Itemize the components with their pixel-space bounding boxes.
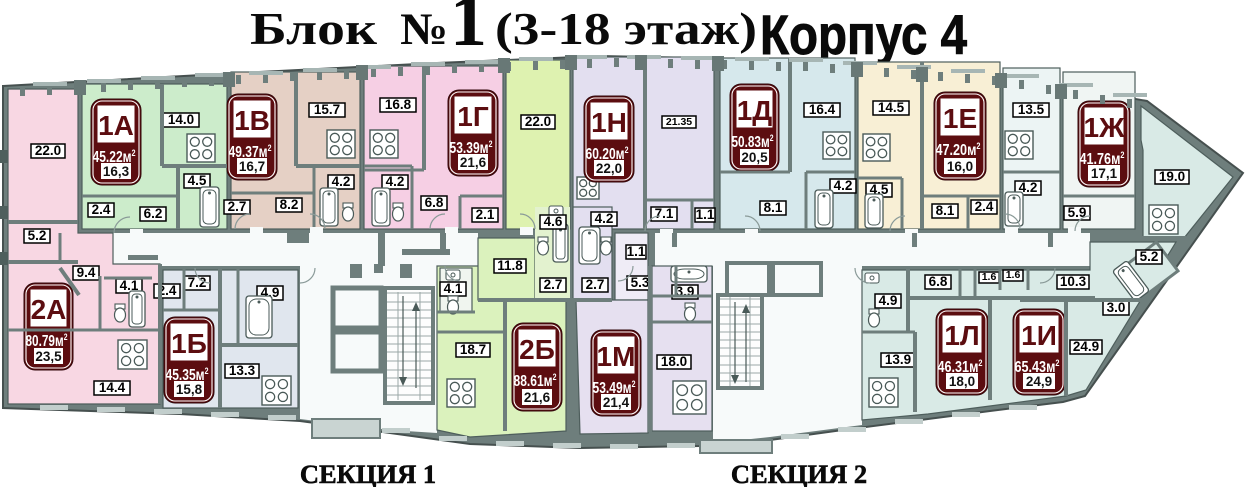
svg-text:1.1: 1.1 [627,244,646,259]
svg-text:1Л: 1Л [944,320,979,351]
svg-text:6.2: 6.2 [144,206,163,221]
svg-text:13.5: 13.5 [1018,102,1045,117]
svg-text:4.2: 4.2 [834,178,853,193]
svg-text:4.6: 4.6 [544,214,563,229]
svg-text:4.2: 4.2 [595,211,614,226]
svg-text:1.6: 1.6 [1006,269,1021,281]
svg-text:18.0: 18.0 [661,354,687,369]
svg-text:24.9: 24.9 [1073,339,1099,354]
svg-text:14.4: 14.4 [99,380,126,395]
svg-text:2.7: 2.7 [544,277,563,292]
svg-text:19.0: 19.0 [1159,169,1185,184]
svg-text:1М: 1М [597,341,636,372]
svg-text:8.2: 8.2 [280,197,299,212]
svg-text:5.2: 5.2 [28,228,47,243]
svg-text:15,8: 15,8 [176,382,203,397]
svg-text:80.79м2: 80.79м2 [26,332,68,350]
svg-text:2.1: 2.1 [476,207,495,222]
svg-text:1.1: 1.1 [696,207,715,222]
svg-text:1И: 1И [1021,320,1057,351]
svg-text:СЕКЦИЯ 1: СЕКЦИЯ 1 [300,459,436,487]
svg-text:8.1: 8.1 [764,200,783,215]
svg-text:1Б: 1Б [171,328,207,359]
svg-text:4.1: 4.1 [444,281,463,296]
svg-text:47.20м2: 47.20м2 [936,141,981,159]
svg-text:(3-18 этаж): (3-18 этаж) [495,4,757,54]
svg-text:№: № [400,4,448,54]
svg-text:14.0: 14.0 [168,112,194,127]
svg-text:1А: 1А [98,110,134,141]
svg-text:6.8: 6.8 [425,195,444,210]
svg-text:2.4: 2.4 [975,199,994,214]
svg-text:2А: 2А [31,294,67,325]
svg-text:13.3: 13.3 [229,363,256,378]
svg-text:6.8: 6.8 [929,274,948,289]
svg-text:10.3: 10.3 [1060,274,1087,289]
svg-text:5.2: 5.2 [1140,249,1159,264]
svg-text:24,9: 24,9 [1026,374,1052,389]
svg-text:1.6: 1.6 [982,271,997,283]
svg-text:15.7: 15.7 [314,102,340,117]
svg-text:3.0: 3.0 [1107,300,1126,315]
svg-text:7.1: 7.1 [655,206,674,221]
svg-text:7.2: 7.2 [188,275,207,290]
svg-text:2.7: 2.7 [586,277,605,292]
svg-text:1Ж: 1Ж [1084,112,1126,143]
svg-text:5.3: 5.3 [631,275,650,290]
svg-text:18.7: 18.7 [460,342,486,357]
svg-text:16,7: 16,7 [239,159,265,174]
svg-text:21,4: 21,4 [603,395,630,410]
svg-text:16,0: 16,0 [947,159,973,174]
svg-text:4.2: 4.2 [332,174,351,189]
svg-text:1Е: 1Е [943,103,977,134]
svg-text:22,0: 22,0 [596,161,622,176]
svg-text:18,0: 18,0 [949,374,975,389]
svg-text:Блок: Блок [250,4,377,54]
svg-text:23,5: 23,5 [35,349,62,364]
svg-text:2Б: 2Б [519,334,555,365]
svg-text:22.0: 22.0 [35,143,61,158]
svg-text:1Г: 1Г [457,101,489,132]
svg-text:1Н: 1Н [591,107,627,138]
svg-text:50.83м2: 50.83м2 [732,133,774,151]
svg-text:9.4: 9.4 [77,265,96,280]
svg-text:22.0: 22.0 [525,114,551,129]
svg-text:СЕКЦИЯ 2: СЕКЦИЯ 2 [731,459,867,487]
svg-text:21,6: 21,6 [460,155,487,170]
svg-text:1В: 1В [234,105,270,136]
svg-text:2.4: 2.4 [92,202,111,217]
svg-text:4.2: 4.2 [386,174,405,189]
svg-text:2.7: 2.7 [228,199,247,214]
svg-text:Корпус 4: Корпус 4 [760,3,967,66]
svg-text:88.61м2: 88.61м2 [514,372,557,390]
svg-text:4.9: 4.9 [879,293,898,308]
svg-text:13.9: 13.9 [885,352,911,367]
svg-text:1Д: 1Д [737,95,773,126]
svg-text:16.4: 16.4 [809,102,836,117]
svg-text:20,5: 20,5 [741,150,768,165]
svg-text:14.5: 14.5 [878,100,905,115]
svg-text:1: 1 [450,0,487,62]
svg-text:8.1: 8.1 [936,203,955,218]
svg-text:21,6: 21,6 [524,390,551,405]
svg-text:11.8: 11.8 [497,258,523,273]
svg-text:4.5: 4.5 [188,173,207,188]
svg-text:21.35: 21.35 [666,116,692,128]
svg-text:16,3: 16,3 [103,164,130,179]
svg-text:16.8: 16.8 [385,97,412,112]
svg-text:17,1: 17,1 [1091,166,1118,181]
